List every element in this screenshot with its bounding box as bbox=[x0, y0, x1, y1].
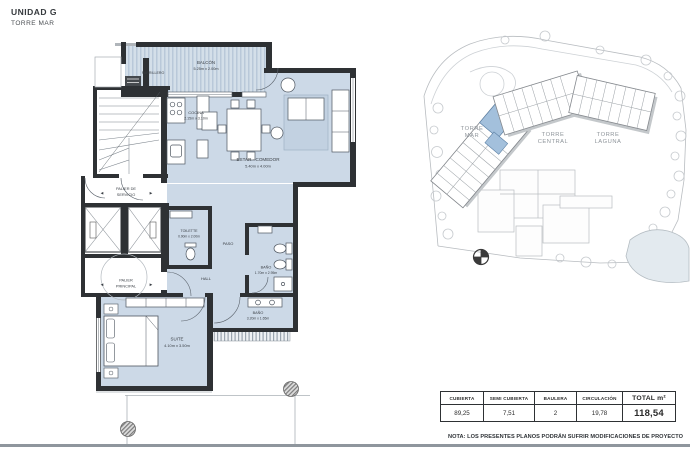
svg-text:MAR: MAR bbox=[465, 133, 479, 139]
room-label-cocina: COCINA bbox=[188, 110, 204, 115]
label-torre-laguna: TORRE bbox=[597, 132, 620, 138]
plan-drawing: PARRILLERO BALCÓN 5.25m x 2.00m COCINA 2… bbox=[0, 0, 690, 450]
site-plan bbox=[424, 31, 689, 283]
svg-text:2.15m x 3.10m: 2.15m x 3.10m bbox=[184, 117, 208, 121]
tower-subtitle: TORRE MAR bbox=[11, 20, 57, 27]
svg-text:5.40m x 4.00m: 5.40m x 4.00m bbox=[245, 164, 271, 169]
area-summary-table: CUBIERTA SEMI CUBIERTA BAULERA CIRCULACI… bbox=[440, 391, 676, 422]
svg-text:LAGUNA: LAGUNA bbox=[595, 139, 622, 145]
amenities-building bbox=[478, 170, 612, 256]
room-label-balcon: BALCÓN bbox=[197, 60, 215, 65]
svg-text:3.20m x 1.65m: 3.20m x 1.65m bbox=[247, 317, 270, 321]
value-baulera: 2 bbox=[535, 404, 577, 421]
unit-title: UNIDAD G bbox=[11, 7, 57, 17]
label-torre-central: TORRE bbox=[542, 132, 565, 138]
column bbox=[121, 422, 136, 437]
parrillero-grill bbox=[125, 76, 141, 86]
room-label-suite: SUITE bbox=[171, 337, 184, 342]
room-label-estar: ESTAR - COMEDOR bbox=[236, 157, 280, 162]
room-label-bano-suite: BAÑO bbox=[261, 265, 272, 270]
room-label-bano: BAÑO bbox=[253, 310, 264, 315]
svg-text:1.70m x 2.95m: 1.70m x 2.95m bbox=[255, 271, 278, 275]
room-label-hall: HALL bbox=[201, 276, 212, 281]
label-torre-mar: TORRE bbox=[461, 126, 484, 132]
sheet-header: UNIDAD G TORRE MAR bbox=[11, 7, 57, 27]
col-header-semi-cubierta: SEMI CUBIERTA bbox=[484, 392, 535, 404]
col-header-baulera: BAULERA bbox=[535, 392, 577, 404]
bottom-divider-bar bbox=[0, 444, 690, 447]
value-circulacion: 19,78 bbox=[577, 404, 623, 421]
disclaimer-note: NOTA: LOS PRESENTES PLANOS PODRÁN SUFRIR… bbox=[448, 434, 683, 440]
svg-text:SERVICIO: SERVICIO bbox=[117, 192, 136, 197]
col-header-circulacion: CIRCULACIÓN bbox=[577, 392, 623, 404]
room-label-toilette: TOILETTE bbox=[180, 229, 198, 233]
table-header-row: CUBIERTA SEMI CUBIERTA BAULERA CIRCULACI… bbox=[441, 392, 675, 404]
value-semi-cubierta: 7,51 bbox=[484, 404, 535, 421]
svg-text:PRINCIPAL: PRINCIPAL bbox=[116, 284, 137, 289]
svg-text:CENTRAL: CENTRAL bbox=[538, 139, 569, 145]
building-torre-laguna bbox=[568, 75, 658, 134]
compass-icon bbox=[474, 250, 489, 265]
value-total: 118,54 bbox=[623, 404, 675, 421]
room-label-parrillero: PARRILLERO bbox=[142, 71, 165, 75]
column bbox=[284, 382, 299, 397]
value-cubierta: 89,25 bbox=[441, 404, 484, 421]
room-label-paso: PASO bbox=[223, 241, 234, 246]
arrow-right-icon: ► bbox=[149, 282, 153, 287]
arrow-left-icon: ◄ bbox=[100, 282, 104, 287]
svg-text:4.10m x 3.50m: 4.10m x 3.50m bbox=[164, 343, 190, 348]
staircase bbox=[99, 92, 160, 174]
room-label-palier-principal: PALIER bbox=[119, 278, 133, 283]
svg-text:5.25m x 2.00m: 5.25m x 2.00m bbox=[193, 67, 218, 71]
svg-text:0.90m x 2.00m: 0.90m x 2.00m bbox=[178, 235, 200, 239]
arrow-left-icon: ◄ bbox=[100, 191, 104, 196]
table-value-row: 89,25 7,51 2 19,78 118,54 bbox=[441, 404, 675, 421]
lake bbox=[626, 230, 689, 283]
bathroom2-fixtures bbox=[248, 298, 282, 307]
arrow-right-icon: ► bbox=[149, 191, 153, 196]
plan-sheet: PARRILLERO BALCÓN 5.25m x 2.00m COCINA 2… bbox=[0, 0, 690, 450]
col-header-cubierta: CUBIERTA bbox=[441, 392, 484, 404]
col-header-total: TOTAL m² bbox=[623, 392, 675, 404]
room-label-palier-servicio: PALIER DE bbox=[116, 186, 136, 191]
floor-plan bbox=[81, 42, 356, 446]
